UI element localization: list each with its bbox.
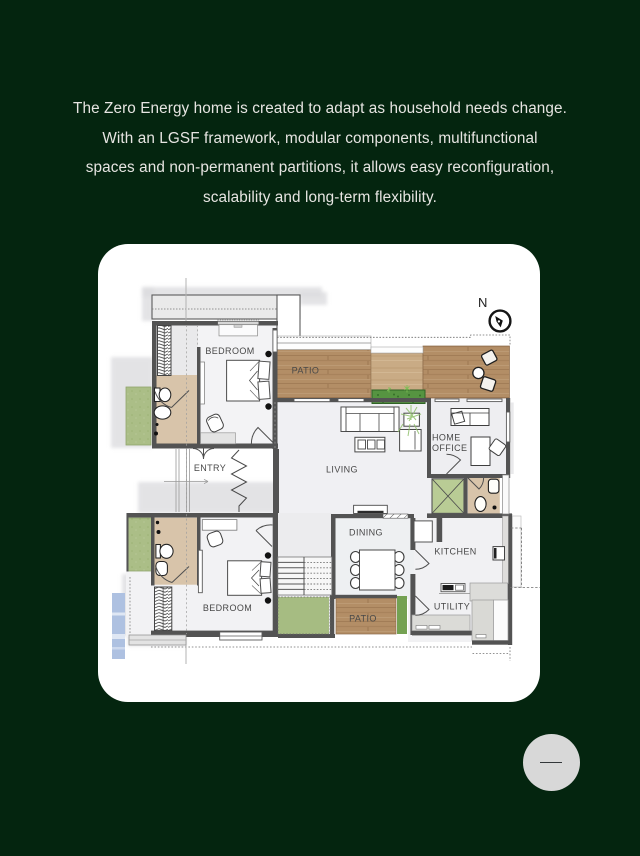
svg-text:PATIO: PATIO <box>292 366 320 376</box>
svg-text:KITCHEN: KITCHEN <box>434 547 476 557</box>
svg-text:HOME: HOME <box>432 433 461 443</box>
svg-text:BEDROOM: BEDROOM <box>203 603 252 613</box>
svg-text:DINING: DINING <box>349 528 383 538</box>
svg-text:ENTRY: ENTRY <box>194 463 226 473</box>
svg-text:PATIO: PATIO <box>349 614 377 624</box>
svg-text:UTILITY: UTILITY <box>434 602 470 612</box>
svg-text:N: N <box>478 295 487 310</box>
svg-text:OFFICE: OFFICE <box>432 443 467 453</box>
svg-text:LIVING: LIVING <box>326 465 358 475</box>
svg-text:BEDROOM: BEDROOM <box>205 346 254 356</box>
